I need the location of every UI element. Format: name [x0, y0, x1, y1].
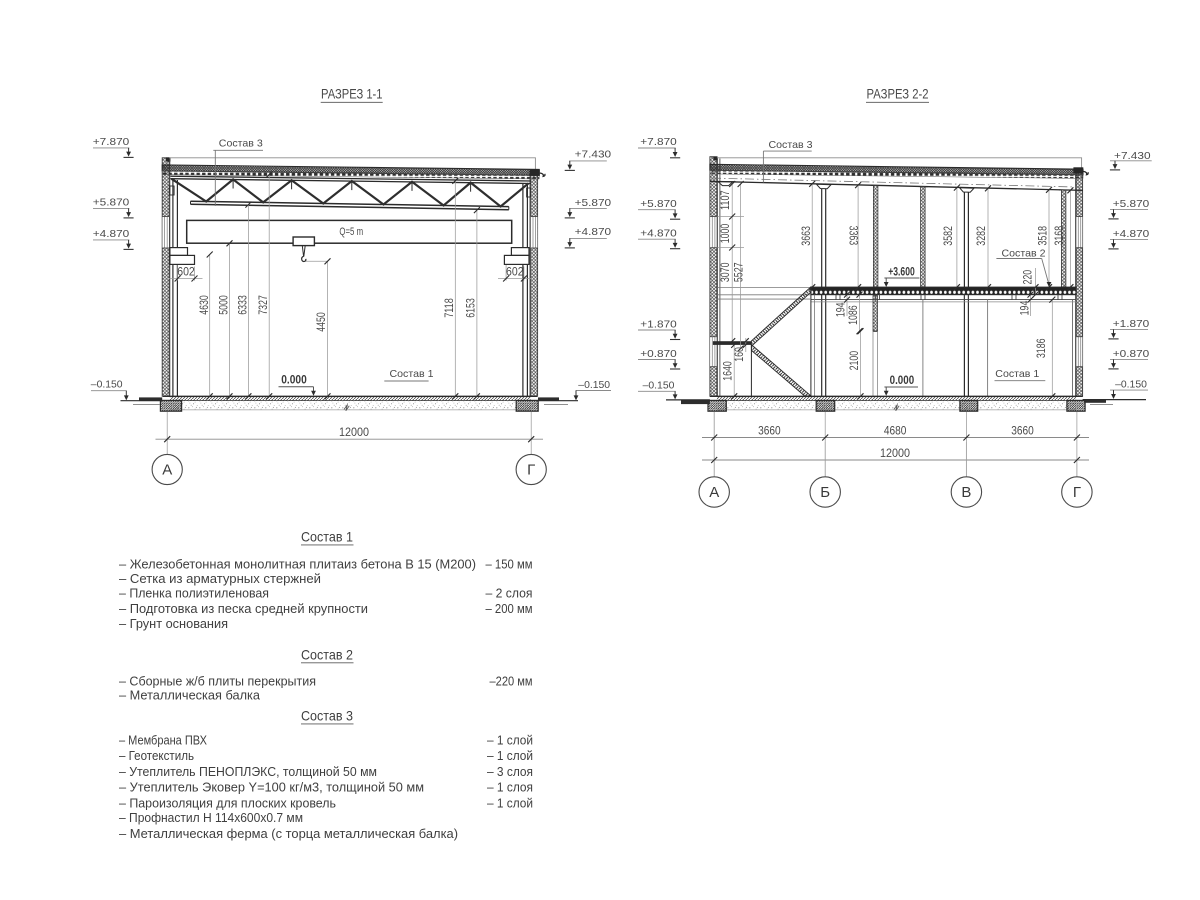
svg-text:– Геотекстиль: – Геотекстиль	[119, 748, 194, 763]
svg-text:7327: 7327	[258, 295, 270, 315]
svg-text:12000: 12000	[339, 425, 369, 439]
svg-text:А: А	[162, 462, 172, 479]
svg-text:194: 194	[1019, 300, 1031, 315]
svg-text:Состав 1: Состав 1	[995, 369, 1039, 380]
svg-text:220: 220	[1023, 270, 1035, 285]
svg-text:2100: 2100	[849, 351, 861, 371]
svg-text:Состав 1: Состав 1	[390, 369, 434, 380]
svg-text:4680: 4680	[884, 423, 907, 437]
svg-text:1086: 1086	[848, 305, 860, 325]
svg-text:1640: 1640	[723, 361, 735, 381]
svg-text:6153: 6153	[466, 298, 478, 318]
svg-text:3168: 3168	[1054, 226, 1066, 246]
svg-text:Состав 2: Состав 2	[301, 648, 353, 663]
svg-text:РАЗРЕЗ 2-2: РАЗРЕЗ 2-2	[867, 87, 929, 103]
svg-text:3660: 3660	[758, 423, 781, 437]
svg-text:Состав 3: Состав 3	[219, 138, 263, 149]
svg-text:– 1 слой: – 1 слой	[487, 748, 533, 763]
svg-text:–220 мм: –220 мм	[490, 674, 533, 689]
svg-text:3518: 3518	[1038, 226, 1050, 246]
svg-text:– Грунт основания: – Грунт основания	[119, 616, 228, 631]
svg-text:– Пароизоляция для плоских кро: – Пароизоляция для плоских кровель	[119, 795, 336, 810]
svg-text:12000: 12000	[880, 446, 910, 460]
svg-text:160: 160	[734, 347, 746, 362]
svg-text:Q=5 m: Q=5 m	[339, 226, 363, 238]
svg-text:– Мембрана ПВХ: – Мембрана ПВХ	[119, 732, 207, 747]
svg-text:+0.870: +0.870	[1113, 349, 1150, 360]
svg-text:А: А	[709, 484, 719, 501]
svg-text:1000: 1000	[720, 224, 732, 244]
svg-text:Б: Б	[820, 484, 830, 501]
svg-text:1107: 1107	[720, 190, 732, 210]
svg-text:+5.870: +5.870	[575, 198, 612, 209]
svg-text:0.000: 0.000	[281, 372, 307, 386]
svg-text:+7.430: +7.430	[1114, 151, 1151, 162]
svg-text:+4.870: +4.870	[575, 227, 612, 238]
svg-text:+5.870: +5.870	[1113, 199, 1150, 210]
svg-text:+0.870: +0.870	[640, 349, 677, 360]
svg-text:– 1 слой: – 1 слой	[487, 732, 533, 747]
svg-text:–0.150: –0.150	[578, 380, 610, 391]
svg-text:+7.870: +7.870	[640, 137, 677, 148]
svg-text:+1.870: +1.870	[1113, 319, 1150, 330]
svg-text:Состав 1: Состав 1	[301, 530, 353, 545]
svg-text:–0.150: –0.150	[1115, 380, 1147, 391]
svg-text:– 3 слоя: – 3 слоя	[487, 764, 533, 779]
svg-text:3663: 3663	[801, 226, 813, 246]
svg-text:– Металлическая ферма (с торца: – Металлическая ферма (с торца металличе…	[119, 826, 458, 841]
svg-text:+4.870: +4.870	[1113, 229, 1150, 240]
svg-text:– 1 слоя: – 1 слоя	[487, 780, 533, 795]
svg-text:7118: 7118	[444, 298, 456, 318]
svg-text:Состав 3: Состав 3	[769, 140, 813, 151]
svg-text:6333: 6333	[238, 295, 250, 315]
svg-text:+7.430: +7.430	[575, 150, 612, 161]
svg-text:–0.150: –0.150	[91, 380, 123, 391]
svg-text:+4.870: +4.870	[640, 228, 677, 239]
svg-text:– Металлическая балка: – Металлическая балка	[119, 688, 261, 703]
svg-text:3070: 3070	[720, 263, 732, 283]
svg-text:– Подготовка из песка средней: – Подготовка из песка средней крупности	[119, 601, 368, 616]
svg-text:3363: 3363	[847, 226, 859, 246]
svg-text:Г: Г	[527, 462, 535, 479]
svg-text:3282: 3282	[976, 226, 988, 246]
svg-text:+4.870: +4.870	[93, 229, 130, 240]
svg-text:– Пленка полиэтиленовая: – Пленка полиэтиленовая	[119, 586, 269, 601]
svg-text:– Утеплитель Эковер Y=100 кг/м: – Утеплитель Эковер Y=100 кг/м3, толщино…	[119, 780, 424, 795]
svg-text:3660: 3660	[1011, 423, 1034, 437]
svg-text:+5.870: +5.870	[640, 199, 677, 210]
svg-text:–0.150: –0.150	[643, 381, 675, 392]
svg-text:– 2 слоя: – 2 слоя	[486, 586, 533, 601]
svg-text:194: 194	[836, 302, 848, 317]
svg-text:+3.600: +3.600	[888, 265, 915, 279]
svg-text:+5.870: +5.870	[93, 198, 130, 209]
svg-text:5527: 5527	[733, 263, 745, 283]
svg-text:5000: 5000	[219, 295, 231, 315]
svg-text:– Сетка из арматурных стержней: – Сетка из арматурных стержней	[119, 571, 321, 586]
svg-text:+1.870: +1.870	[640, 319, 677, 330]
svg-text:РАЗРЕЗ 1-1: РАЗРЕЗ 1-1	[321, 87, 383, 103]
svg-text:+7.870: +7.870	[93, 137, 130, 148]
svg-text:3582: 3582	[943, 226, 955, 246]
svg-text:– 150 мм: – 150 мм	[486, 557, 533, 572]
svg-text:– Утеплитель ПЕНОПЛЭКС, толщин: – Утеплитель ПЕНОПЛЭКС, толщиной 50 мм	[119, 764, 377, 779]
svg-text:Г: Г	[1073, 484, 1081, 501]
svg-text:602: 602	[506, 267, 524, 279]
svg-text:– Сборные ж/б плиты перекрытия: – Сборные ж/б плиты перекрытия	[119, 674, 316, 689]
svg-text:В: В	[961, 484, 971, 501]
svg-text:– 1 слой: – 1 слой	[487, 795, 533, 810]
svg-text:0.000: 0.000	[890, 373, 915, 387]
svg-text:– Профнастил Н 114х600х0.7 мм: – Профнастил Н 114х600х0.7 мм	[119, 810, 303, 825]
svg-text:4630: 4630	[199, 295, 211, 315]
svg-text:4450: 4450	[316, 312, 328, 332]
svg-text:Состав 3: Состав 3	[301, 709, 353, 724]
svg-text:602: 602	[177, 267, 195, 279]
svg-text:– Железобетонная монолитная п: – Железобетонная монолитная плитаиз бето…	[119, 557, 476, 572]
svg-text:– 200 мм: – 200 мм	[486, 601, 533, 616]
svg-text:3186: 3186	[1036, 338, 1048, 358]
